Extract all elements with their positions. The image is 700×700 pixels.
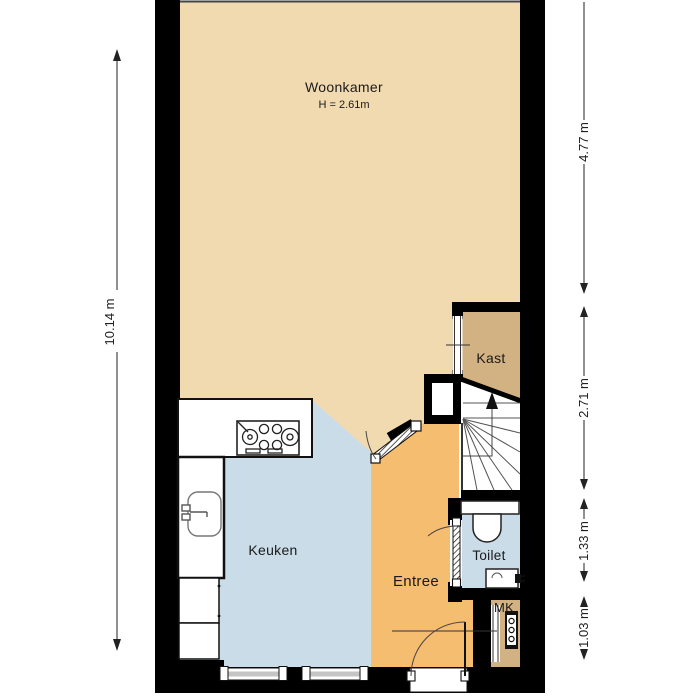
wall-stair-bottom [461,490,520,502]
kast-label: Kast [476,350,505,366]
dimension-right-3-label: 1.33 m [576,521,591,561]
dimension-left-total [113,49,121,651]
duct-shaft-inner [432,383,453,415]
cabinet-hinge-dot [218,585,221,588]
floorplan-canvas: Woonkamer H = 2.61m Kast Keuken Entree T… [0,0,700,700]
keuken-label: Keuken [248,542,297,558]
woonkamer-label: Woonkamer [305,79,383,95]
dimension-arrow-up [580,306,588,317]
mk-label: MK [494,600,514,615]
wall-left [155,0,180,693]
dimension-arrow-down [580,479,588,490]
window-icon [302,667,368,681]
dimension-right-2-label: 2.71 m [576,378,591,418]
kitchen-appliance-upper [179,578,219,623]
wall-right [520,0,545,693]
cabinet-hinge-dot [218,615,221,618]
dimension-arrow-down [580,571,588,582]
entree-label: Entree [393,573,439,590]
dimension-arrow-up [580,596,588,607]
woonkamer-height-note: H = 2.61m [318,99,369,111]
wall-kast-top [452,302,545,312]
door-hinge-square [453,518,461,526]
dimension-right-4-label: 1.03 m [576,608,591,648]
toilet-label: Toilet [472,548,505,563]
dimension-arrow-down [580,649,588,660]
door-hinge-square [411,421,421,431]
dimension-left-total-label: 10.14 m [102,299,117,346]
dimension-arrow-down [113,639,121,651]
window-icon [220,667,287,681]
dimension-right-1-label: 4.77 m [576,122,591,162]
meter-panel-icon [505,611,518,649]
kitchen-appliance-lower [179,623,219,659]
kitchen-sink-icon [182,492,221,536]
dimension-arrow-up [113,49,121,61]
dimension-arrow-up [580,498,588,509]
stove-icon [237,421,299,455]
wall-mk-left [473,598,491,667]
floorplan-svg: Woonkamer H = 2.61m Kast Keuken Entree T… [0,0,700,700]
door-hinge-square [453,579,461,587]
dimension-arrow-down [580,283,588,294]
wall-bottom-left-corner [155,660,224,693]
